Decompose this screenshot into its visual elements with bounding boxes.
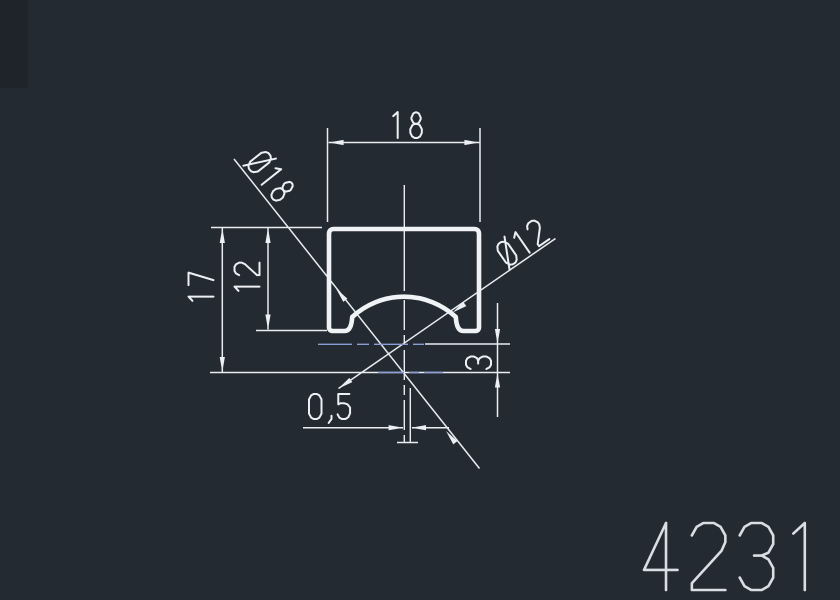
- dimension-arrowhead: [265, 315, 270, 330]
- dimension-arrowhead: [411, 425, 426, 430]
- dimension-arrowhead: [329, 140, 344, 145]
- dimension-arrowhead: [220, 228, 225, 243]
- dim-dia-18: [243, 147, 297, 204]
- dimension-arrowhead: [389, 425, 404, 430]
- dimension-arrowhead: [495, 329, 500, 344]
- dim-offset-3: [466, 357, 491, 370]
- profile-cross-section-drawing: [0, 0, 840, 600]
- annotation-text-layer: [189, 112, 805, 590]
- dimension-arrowhead: [464, 140, 479, 145]
- cad-canvas: [0, 0, 840, 600]
- centerlines-blue: [318, 344, 443, 372]
- dimension-arrowhead: [220, 357, 225, 372]
- leader-dia12: [339, 239, 556, 389]
- dimension-arrowhead: [495, 373, 500, 388]
- dim-height-17: [189, 273, 214, 301]
- dim-width-18: [393, 112, 422, 138]
- dim-height-12: [235, 263, 260, 291]
- centerlines-white: [397, 185, 418, 443]
- dim-offset-05: [309, 394, 350, 423]
- part-number: [644, 523, 805, 590]
- dimension-arrowhead: [334, 287, 347, 302]
- dimension-arrowhead: [265, 228, 270, 243]
